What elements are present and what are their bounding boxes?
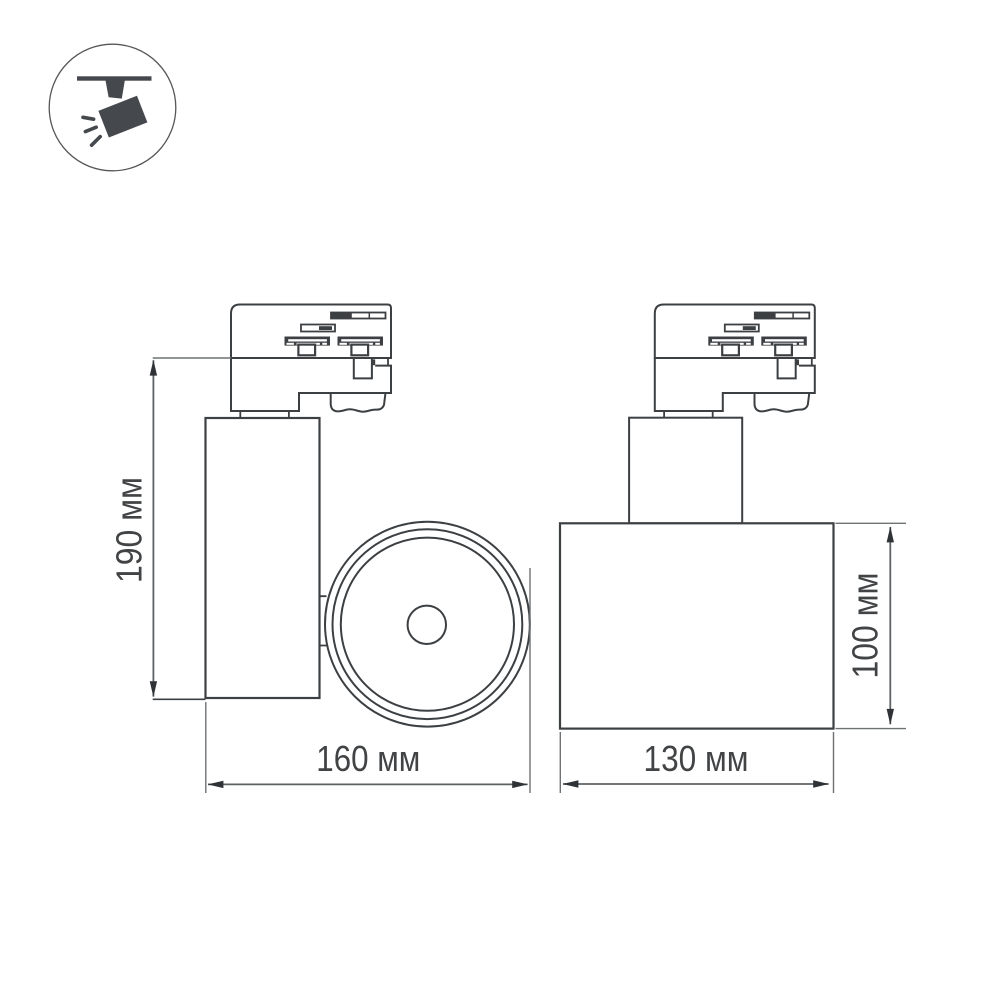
svg-text:100 мм: 100 мм bbox=[844, 573, 885, 679]
svg-text:130 мм: 130 мм bbox=[644, 738, 749, 779]
svg-text:190 мм: 190 мм bbox=[109, 477, 150, 583]
svg-text:160 мм: 160 мм bbox=[316, 738, 420, 779]
